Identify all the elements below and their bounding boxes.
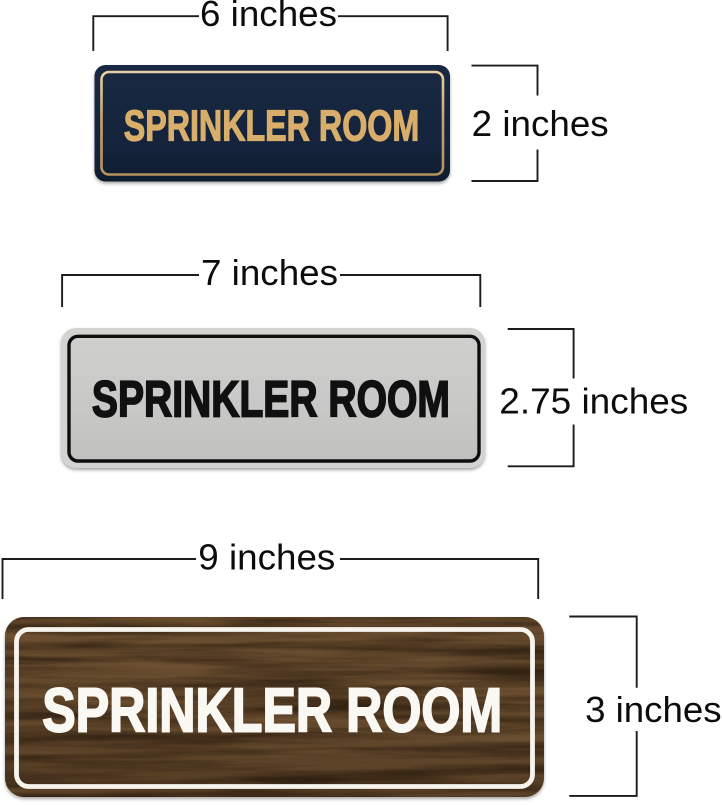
svg-text:6 inches: 6 inches [200,0,337,34]
svg-text:SPRINKLER ROOM: SPRINKLER ROOM [92,371,450,428]
svg-text:SPRINKLER ROOM: SPRINKLER ROOM [42,676,502,746]
svg-text:7 inches: 7 inches [201,252,338,293]
svg-text:9 inches: 9 inches [198,537,335,578]
svg-text:2.75 inches: 2.75 inches [499,381,688,422]
svg-text:SPRINKLER ROOM: SPRINKLER ROOM [124,103,420,151]
svg-text:3 inches: 3 inches [585,689,722,730]
svg-text:2 inches: 2 inches [472,103,609,144]
